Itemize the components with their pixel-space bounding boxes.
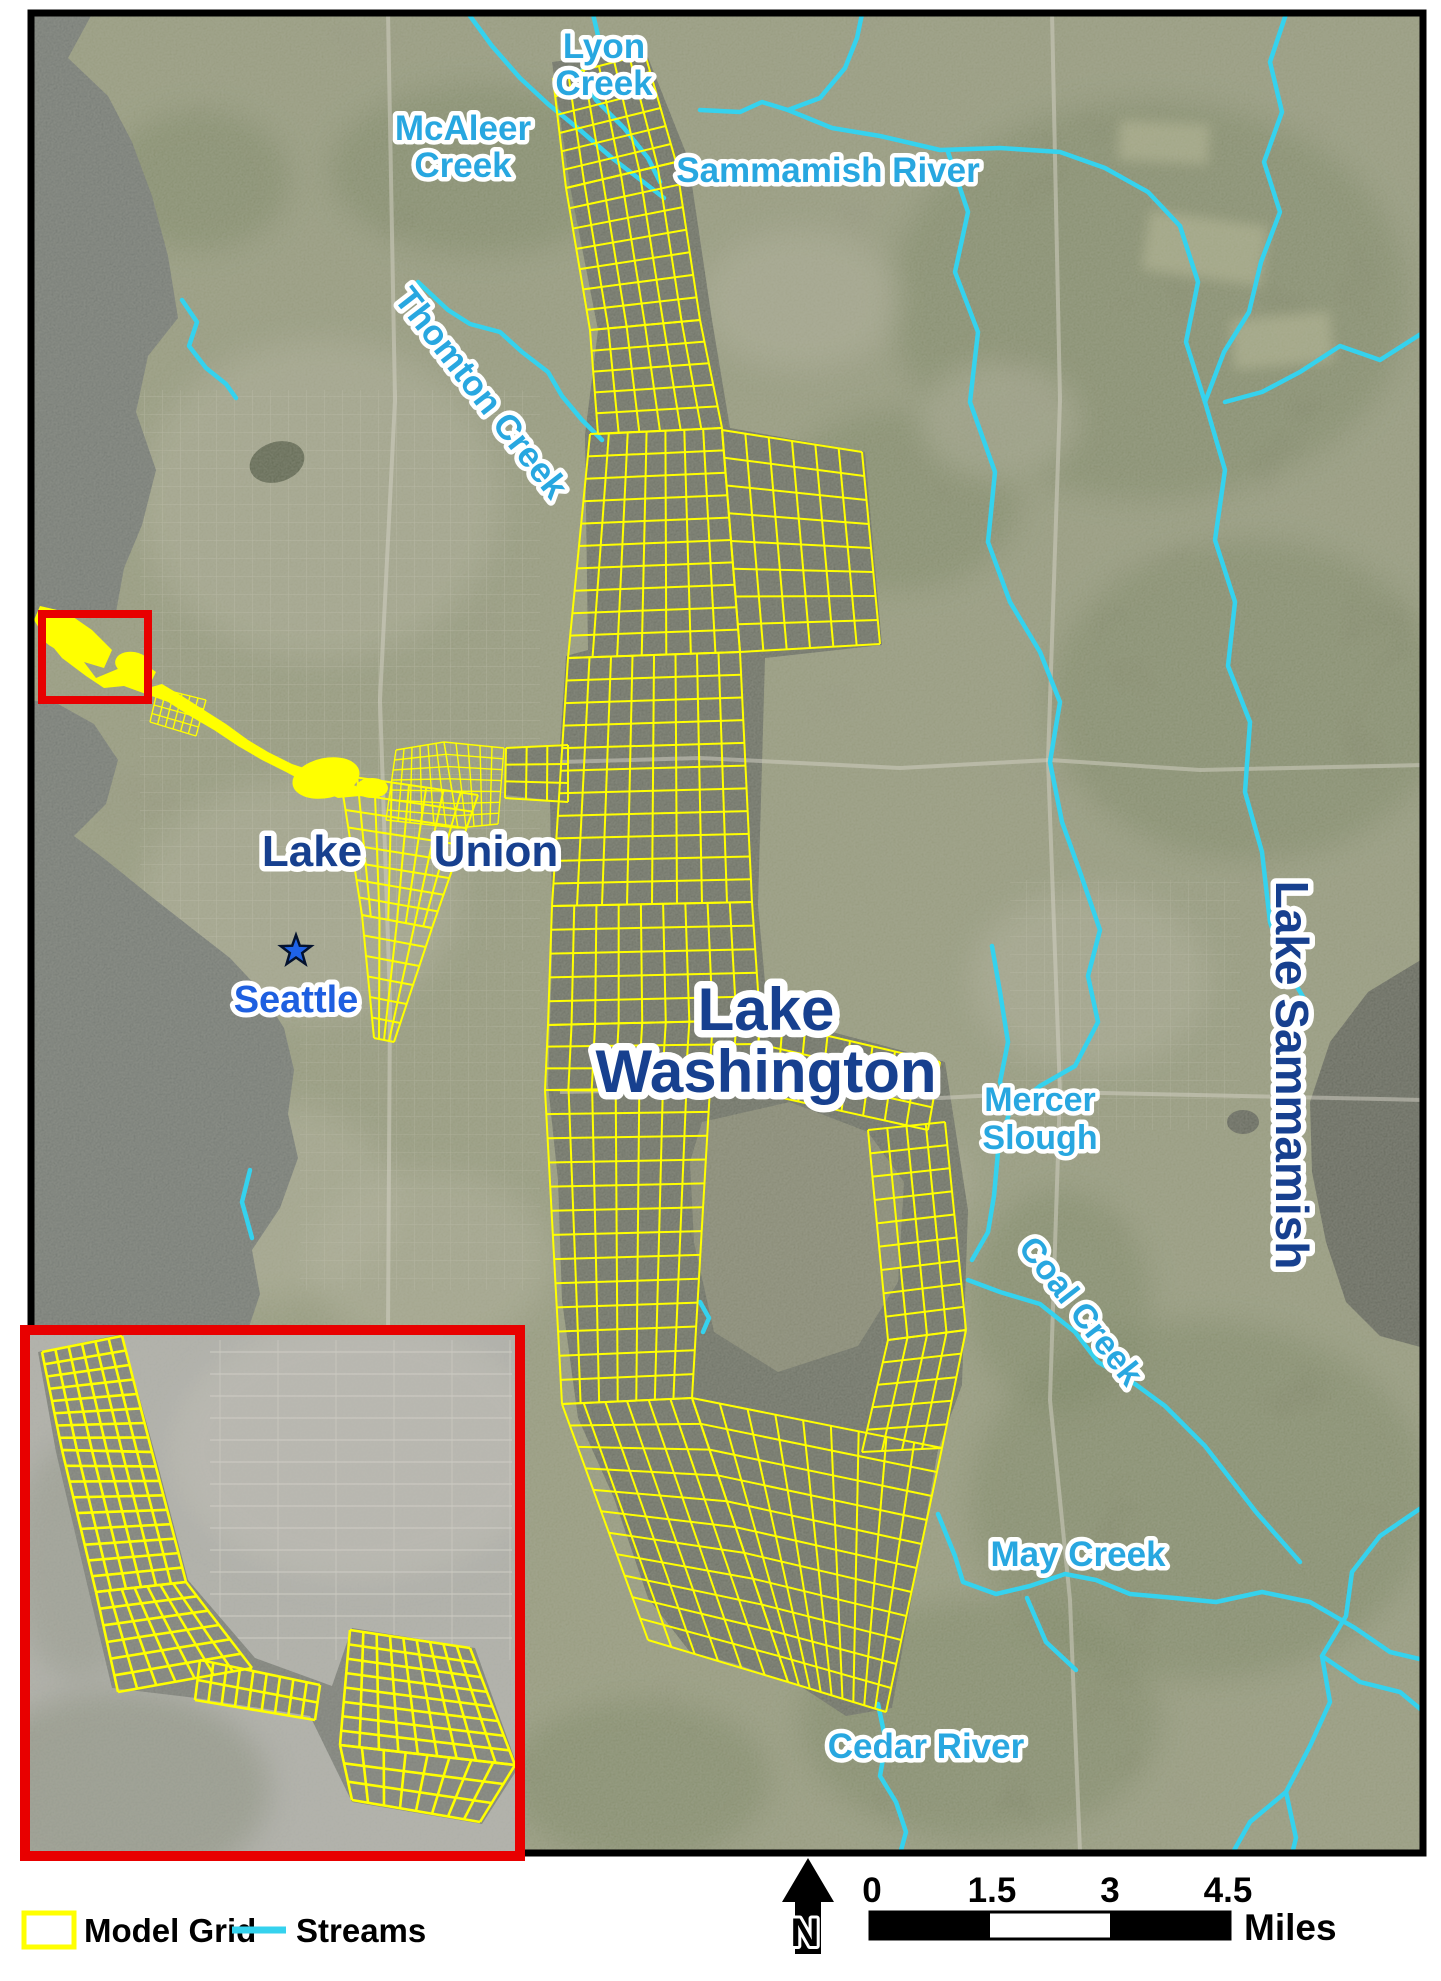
inset-map (0, 1320, 550, 1890)
scale-tick-2: 3 (1100, 1871, 1119, 1910)
label-lake-union-word2: Union (434, 827, 559, 876)
label-cedar-river: Cedar River (828, 1727, 1025, 1766)
grid-line (505, 748, 506, 798)
grid-line (506, 764, 568, 765)
scale-bar: 0 1.5 3 4.5 Miles (862, 1871, 1336, 1948)
scale-tick-0: 0 (862, 1871, 881, 1910)
map-canvas: LyonCreekMcAleerCreekSammamish RiverThom… (0, 0, 1441, 1981)
grid-line (70, 1481, 160, 1482)
label-lake-union-word1: Lake (262, 827, 362, 876)
label-mercer-slough: MercerSlough (982, 1081, 1097, 1157)
legend-model-grid-swatch (24, 1913, 74, 1947)
grid-line (526, 747, 527, 799)
legend-model-grid-label: Model Grid (84, 1912, 256, 1949)
label-sammamish-river: Sammamish River (676, 151, 980, 190)
scale-bar-seg-1 (870, 1912, 990, 1939)
legend: Model Grid Streams (24, 1912, 426, 1949)
scale-tick-3: 4.5 (1204, 1871, 1253, 1910)
label-lyon-creek: LyonCreek (555, 27, 653, 103)
grid-line (66, 1466, 156, 1467)
scale-bar-seg-3 (1110, 1912, 1230, 1939)
north-arrow-label: N (791, 1911, 820, 1955)
label-may-creek: May Creek (990, 1535, 1166, 1574)
label-mcaleer-creek: McAleerCreek (395, 109, 532, 185)
scale-units-label: Miles (1244, 1907, 1337, 1948)
scale-tick-1: 1.5 (968, 1871, 1017, 1910)
legend-streams-label: Streams (296, 1912, 426, 1949)
label-lake-sammamish: Lake Sammamish (1266, 881, 1318, 1270)
grid-line (595, 905, 596, 1024)
inset-haze (30, 1335, 515, 1851)
map-figure: LyonCreekMcAleerCreekSammamish RiverThom… (0, 0, 1441, 1981)
label-seattle: Seattle (234, 979, 359, 1021)
north-arrow: N (782, 1858, 834, 1955)
grid-line (641, 904, 642, 1023)
grid-line (736, 596, 876, 597)
